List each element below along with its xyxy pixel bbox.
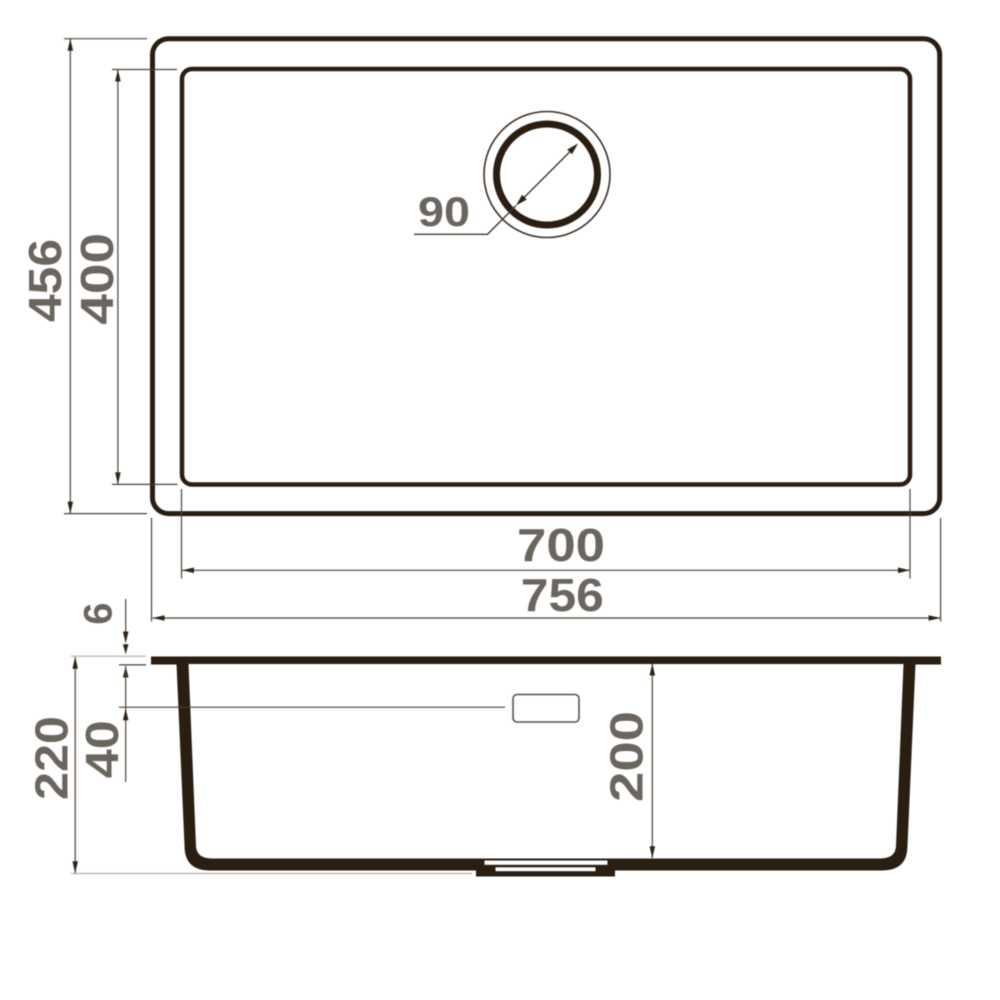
svg-text:90: 90 [418,188,470,235]
svg-text:40: 40 [76,720,128,778]
svg-text:220: 220 [25,716,77,800]
svg-text:700: 700 [517,519,605,571]
svg-text:6: 6 [76,602,120,624]
svg-text:756: 756 [521,569,604,621]
svg-text:456: 456 [19,239,71,322]
svg-text:200: 200 [601,711,653,802]
svg-text:400: 400 [71,233,123,325]
